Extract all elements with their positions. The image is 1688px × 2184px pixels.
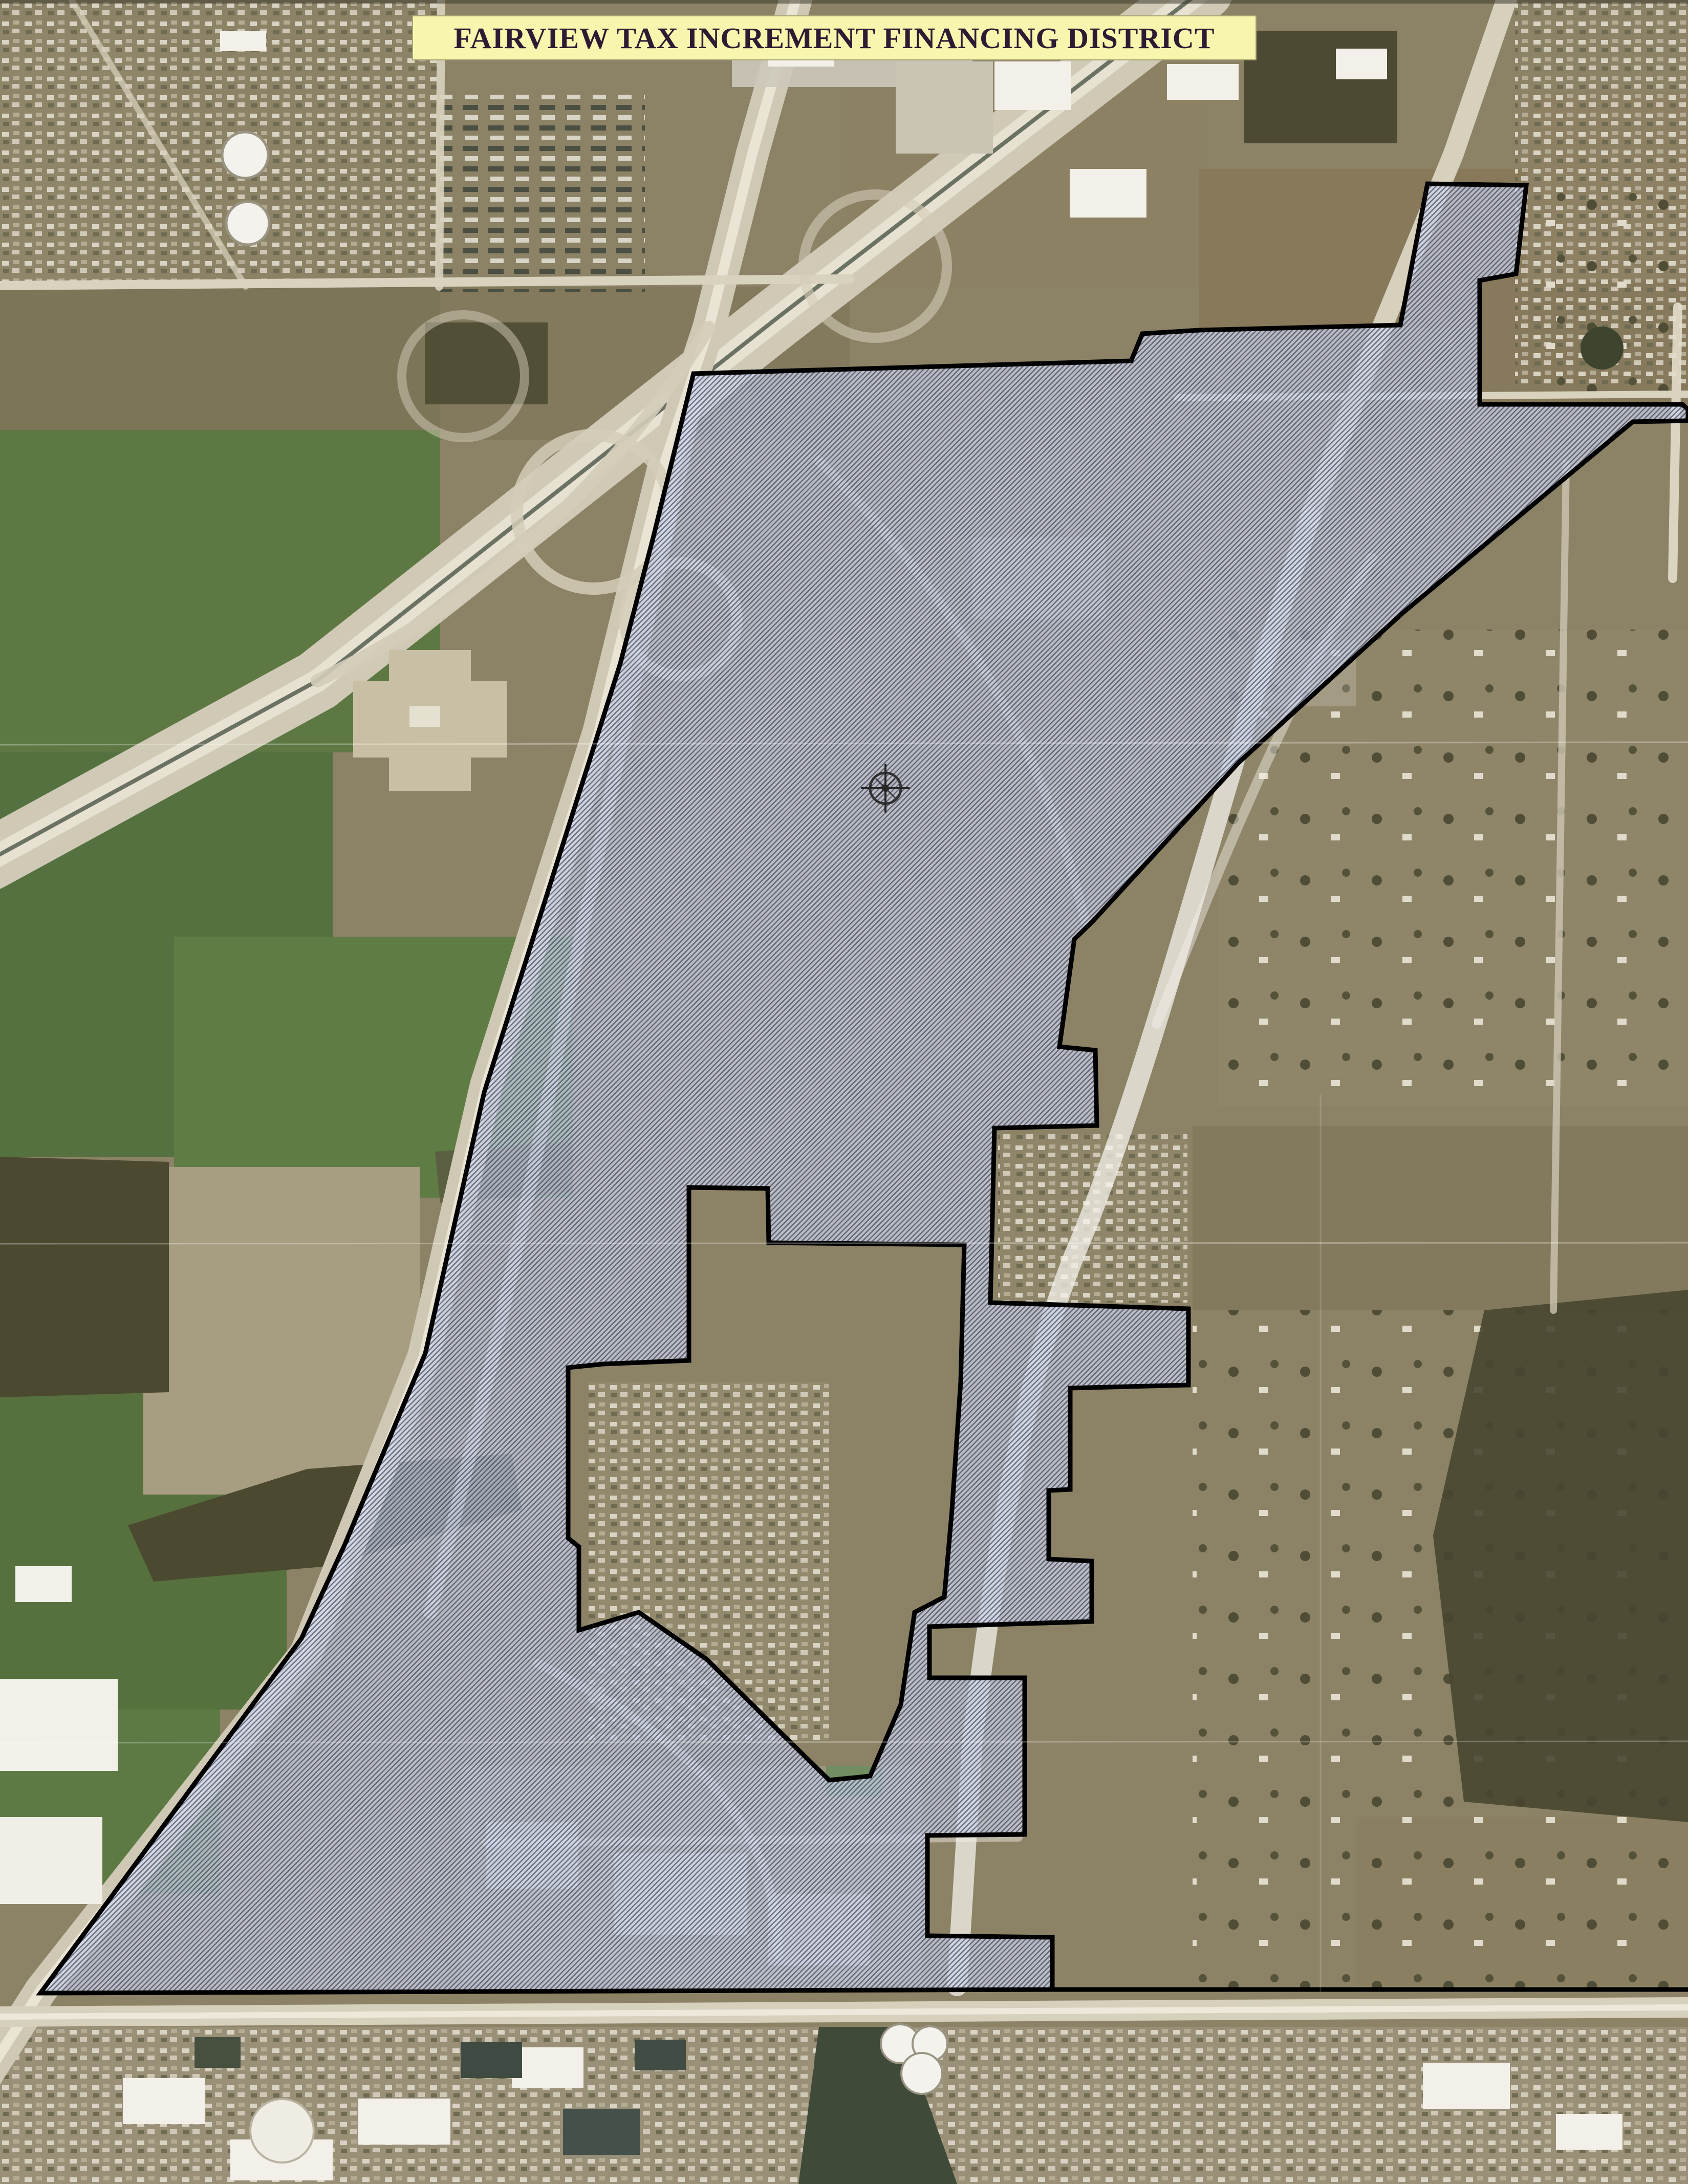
photo-top-edge xyxy=(0,0,1688,4)
map-page: FAIRVIEW TAX INCREMENT FINANCING DISTRIC… xyxy=(0,0,1688,2184)
map-title: FAIRVIEW TAX INCREMENT FINANCING DISTRIC… xyxy=(412,15,1257,60)
aerial-photo-map xyxy=(0,0,1688,2184)
